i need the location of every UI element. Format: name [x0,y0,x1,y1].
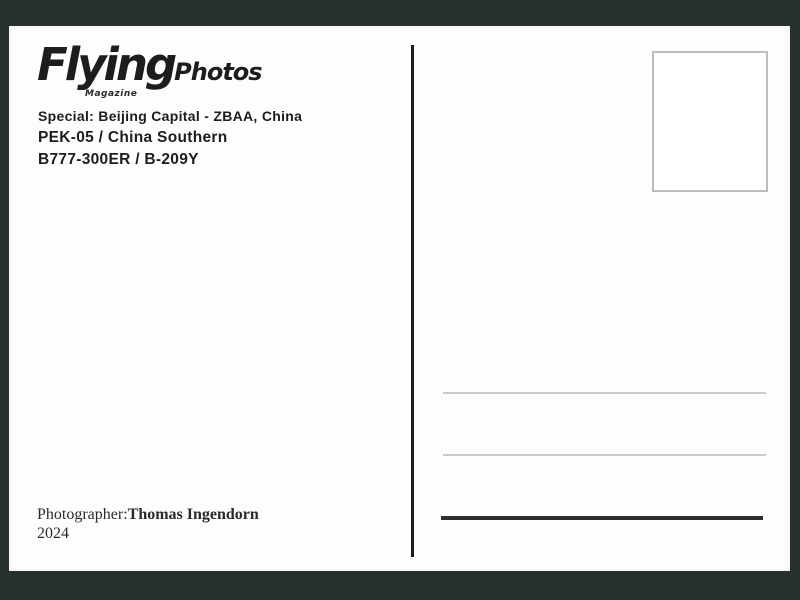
divider-line [411,45,414,557]
photographer-label: Photographer: [37,506,128,523]
logo: FlyingPhotos [37,42,262,87]
special-line: Special: Beijing Capital - ZBAA, China [38,108,302,124]
address-line-3 [441,516,763,520]
caption-block: Special: Beijing Capital - ZBAA, China P… [38,108,302,173]
photographer-line: Photographer:Thomas Ingendorn [37,505,259,524]
photographer-name: Thomas Ingendorn [128,506,259,523]
photographer-credit: Photographer:Thomas Ingendorn 2024 [37,505,259,543]
postcard: FlyingPhotos Magazine Special: Beijing C… [9,26,790,571]
address-line-2 [443,454,766,456]
stamp-box [652,51,768,192]
scan-background: FlyingPhotos Magazine Special: Beijing C… [0,0,800,600]
logo-brand-text: Flying [37,38,174,91]
credit-year: 2024 [37,524,259,543]
flight-line: PEK-05 / China Southern [38,129,302,147]
address-line-1 [443,392,766,394]
aircraft-line: B777-300ER / B-209Y [38,151,302,169]
logo-suffix-text: Photos [174,58,261,86]
logo-tagline: Magazine [85,89,137,99]
